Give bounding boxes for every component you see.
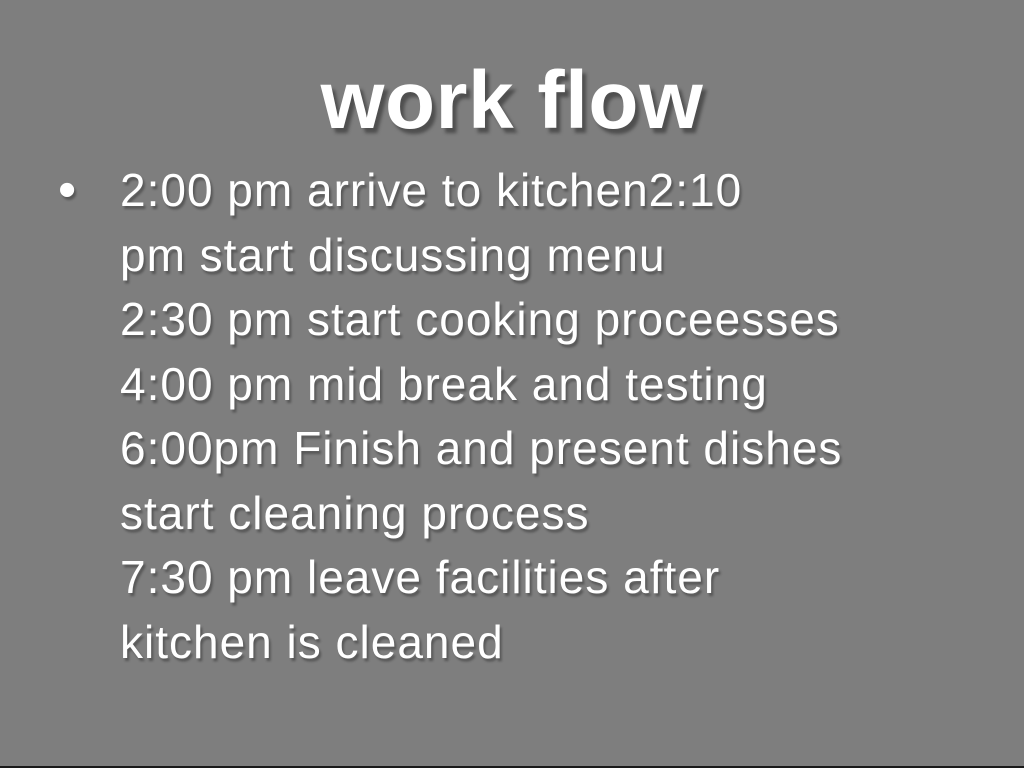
bullet-line: pm start discussing menu: [120, 223, 980, 288]
bullet-text-block: 2:00 pm arrive to kitchen2:10 pm start d…: [120, 158, 980, 674]
bullet-line: start cleaning process: [120, 481, 980, 546]
bullet-line: 4:00 pm mid break and testing: [120, 352, 980, 417]
bullet-marker: •: [58, 158, 76, 223]
bullet-line: 7:30 pm leave facilities after: [120, 545, 980, 610]
bullet-line: 2:30 pm start cooking proceesses: [120, 287, 980, 352]
bullet-line: 6:00pm Finish and present dishes: [120, 416, 980, 481]
slide-title: work flow: [0, 58, 1024, 144]
bullet-line: kitchen is cleaned: [120, 610, 980, 675]
bullet-line: 2:00 pm arrive to kitchen2:10: [120, 158, 980, 223]
presentation-slide: work flow • 2:00 pm arrive to kitchen2:1…: [0, 0, 1024, 768]
